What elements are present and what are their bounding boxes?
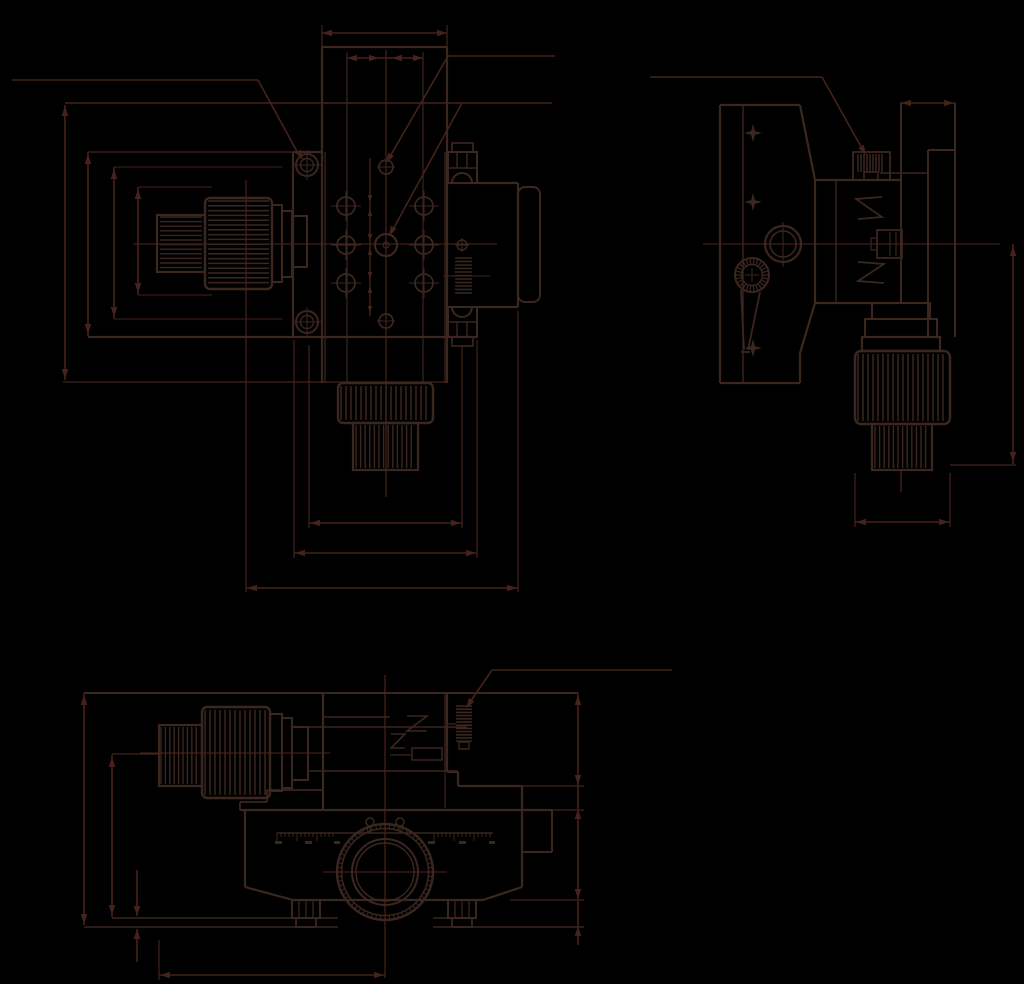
dimension-arrow bbox=[856, 519, 866, 526]
dimension-arrow bbox=[1010, 452, 1017, 462]
dimension-arrow bbox=[295, 550, 305, 557]
arc-primitive bbox=[452, 173, 472, 183]
rect-primitive bbox=[412, 748, 442, 760]
star-mark bbox=[744, 339, 762, 357]
dimension-arrow bbox=[160, 972, 170, 979]
dimension-arrow bbox=[466, 550, 476, 557]
hatch-primitive bbox=[875, 426, 926, 468]
dimension-arrow bbox=[85, 154, 92, 164]
dash-primitive bbox=[489, 841, 495, 844]
dimension-line bbox=[822, 77, 864, 152]
rect-primitive bbox=[452, 918, 472, 927]
dimension-arrow bbox=[247, 585, 257, 592]
dimension-arrow bbox=[81, 695, 88, 705]
dimension-arrow bbox=[368, 234, 373, 241]
lever-arm bbox=[748, 292, 760, 350]
ticks-primitive bbox=[277, 833, 333, 841]
hatch-primitive bbox=[858, 354, 943, 421]
hatch-primitive bbox=[356, 425, 411, 468]
dimension-arrow bbox=[111, 307, 118, 317]
line-primitive bbox=[800, 105, 815, 180]
dimension-arrow bbox=[111, 169, 118, 179]
hatch-primitive bbox=[208, 201, 269, 283]
rect-primitive bbox=[872, 303, 930, 319]
dimension-arrow bbox=[310, 520, 320, 527]
dimension-arrow bbox=[575, 889, 582, 899]
dimension-arrow bbox=[368, 248, 373, 255]
leaf-spring bbox=[391, 734, 405, 748]
rect-primitive bbox=[296, 918, 316, 927]
rect-primitive bbox=[452, 337, 473, 346]
scale-screw bbox=[396, 818, 404, 826]
star-mark bbox=[744, 193, 762, 211]
stage-engineering-drawing bbox=[0, 0, 1024, 984]
dimension-arrow bbox=[81, 914, 88, 924]
hatch-primitive bbox=[161, 727, 196, 784]
dimension-arrow bbox=[939, 519, 949, 526]
dimension-arrow bbox=[368, 195, 373, 202]
lock-screw bbox=[456, 706, 472, 741]
front-view bbox=[81, 670, 672, 980]
dimension-arrow bbox=[858, 145, 866, 155]
dimension-arrow bbox=[451, 520, 461, 527]
dimension-arrow bbox=[392, 55, 402, 62]
rect-primitive bbox=[459, 742, 469, 749]
dimension-arrow bbox=[507, 585, 517, 592]
leaf-spring bbox=[407, 716, 427, 731]
dimension-arrow bbox=[944, 100, 954, 107]
dash-primitive bbox=[428, 841, 435, 844]
dash-primitive bbox=[275, 841, 282, 844]
arc-primitive bbox=[452, 307, 472, 317]
dimension-arrow bbox=[368, 209, 373, 216]
dimension-arrow bbox=[109, 905, 116, 915]
scale-screw bbox=[366, 818, 374, 826]
dimension-arrow bbox=[575, 775, 582, 785]
base-outline bbox=[245, 887, 293, 900]
side-view bbox=[650, 77, 1016, 527]
leaf-spring bbox=[856, 197, 882, 219]
ticks-primitive bbox=[434, 833, 490, 841]
dimension-arrow bbox=[368, 272, 373, 279]
dimension-arrow bbox=[374, 972, 384, 979]
rect-primitive bbox=[865, 319, 937, 337]
dimension-arrow bbox=[85, 324, 92, 334]
dimension-arrow bbox=[368, 286, 373, 293]
base-outline bbox=[483, 887, 522, 900]
hatch-primitive bbox=[341, 386, 426, 420]
rect-primitive bbox=[862, 337, 940, 351]
dimension-arrow bbox=[109, 757, 116, 767]
star-mark bbox=[744, 124, 762, 142]
technical-drawing-canvas bbox=[0, 0, 1024, 984]
dimension-arrow bbox=[437, 30, 447, 37]
dimension-arrow bbox=[62, 106, 69, 116]
rect-primitive bbox=[452, 143, 473, 152]
leaf-spring bbox=[858, 262, 884, 283]
dimension-arrow bbox=[347, 55, 357, 62]
dash-primitive bbox=[305, 841, 312, 844]
side-bracket bbox=[518, 187, 540, 302]
dimension-arrow bbox=[575, 695, 582, 705]
dimension-arrow bbox=[322, 30, 332, 37]
dimension-arrow bbox=[369, 55, 379, 62]
dimension-arrow bbox=[134, 906, 141, 916]
dimension-arrow bbox=[413, 55, 423, 62]
rect-primitive bbox=[292, 216, 307, 267]
dimension-arrow bbox=[368, 306, 373, 313]
hatch-primitive bbox=[858, 154, 882, 172]
dash-primitive bbox=[334, 841, 340, 844]
rect-primitive bbox=[864, 172, 878, 180]
dimension-arrow bbox=[62, 369, 69, 379]
top-view bbox=[12, 25, 555, 592]
dimension-arrow bbox=[135, 189, 142, 199]
dimension-line bbox=[258, 80, 300, 157]
dimension-arrow bbox=[901, 100, 911, 107]
hatch-primitive bbox=[160, 217, 202, 268]
dimension-arrow bbox=[1010, 246, 1017, 256]
dimension-arrow bbox=[135, 283, 142, 293]
dash-primitive bbox=[459, 841, 466, 844]
line-primitive bbox=[800, 303, 815, 353]
dimension-arrow bbox=[134, 929, 141, 939]
